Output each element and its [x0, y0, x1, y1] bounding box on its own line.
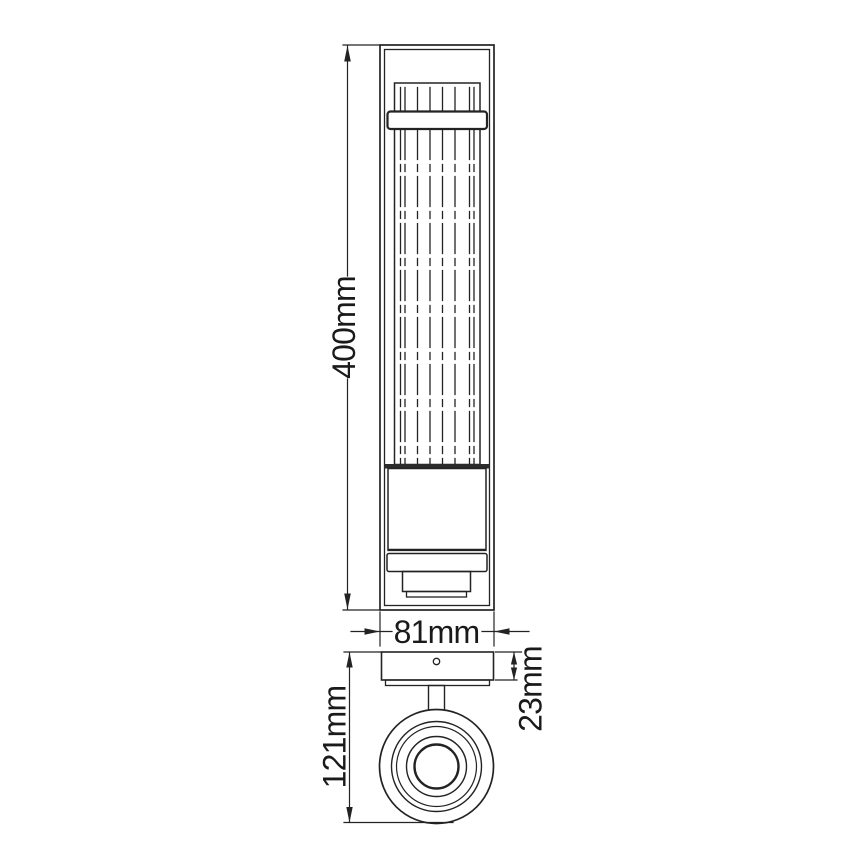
arrowhead-right-icon — [365, 628, 381, 634]
glass-diffuser-outline — [395, 83, 481, 465]
arrowhead-up-icon — [346, 652, 352, 668]
base-step — [403, 572, 471, 592]
mounting-plate — [382, 652, 494, 680]
dimension-drawing: 400mm 81mm 121mm — [0, 0, 868, 868]
driver-box — [388, 469, 486, 550]
glass-flutes-upper — [401, 88, 475, 112]
base-lip — [407, 592, 467, 598]
mounting-plate-lip — [386, 680, 490, 686]
plate-depth-dimension-label: 23mm — [513, 646, 549, 732]
glass-flutes-lower — [401, 130, 475, 464]
front-elevation-view — [380, 45, 494, 610]
arrowhead-up-icon — [344, 46, 351, 62]
width-dimension-label: 81mm — [394, 614, 480, 650]
depth-dimension-label: 121mm — [317, 686, 353, 789]
screw-hole — [433, 658, 439, 664]
base-band — [387, 554, 487, 572]
height-dimension-label: 400mm — [326, 276, 362, 379]
fixture-stem — [429, 686, 445, 711]
side-profile-view — [380, 652, 494, 824]
arrowhead-down-icon — [346, 807, 352, 823]
arrowhead-down-icon — [344, 594, 351, 610]
glass-retaining-band — [388, 112, 488, 130]
arrowhead-left-icon — [494, 628, 510, 634]
